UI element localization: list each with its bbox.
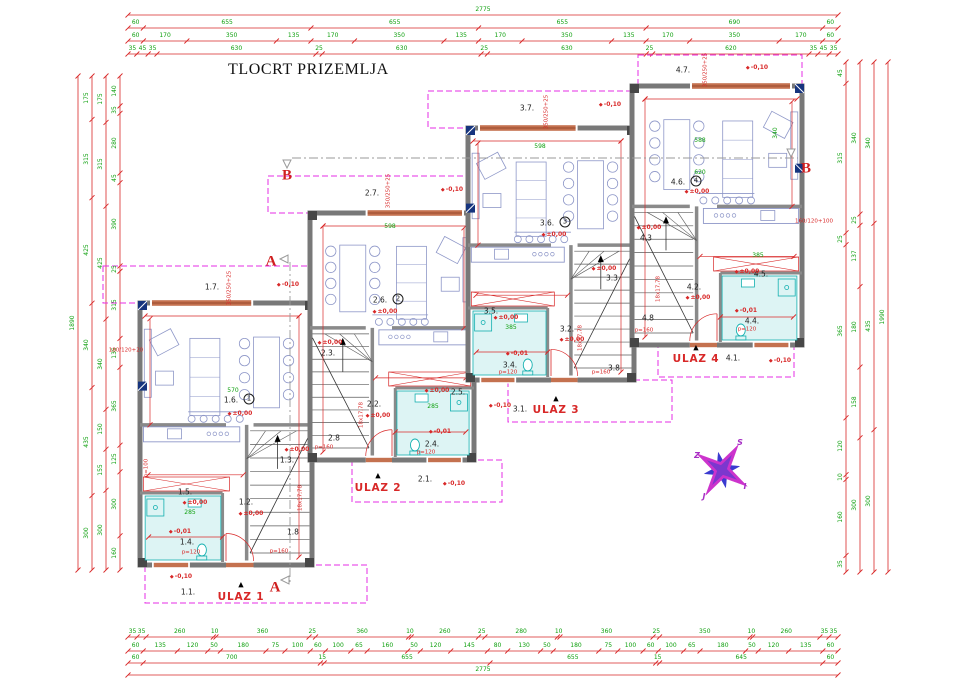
dimension-value: 135 [623,33,634,39]
dimension-value: 180 [237,643,248,649]
level-marker: ±0,00 [318,340,343,346]
room-label: 2.8 [328,434,340,442]
dimension-value: 180 [852,321,858,332]
dimension-value: 1890 [70,315,76,330]
dimension-value: 180 [570,643,581,649]
dimension-value: 620 [725,46,736,52]
dimension-value: 25 [646,46,654,52]
dimension-value: 120 [187,643,198,649]
dimension-value: 60 [132,33,140,39]
entrance-arrow-icon: ▲ [375,473,380,480]
dimension-note: p=160 [592,370,611,376]
room-label: 2.2. [367,400,381,408]
dimension-value: 598 [534,144,545,150]
dimension-value: 25 [838,235,844,243]
dimension-value: 350 [561,33,572,39]
dimension-value: 10 [748,629,756,635]
dimension-value: 285 [184,510,195,516]
dimension-value: 425 [98,257,104,268]
dimension-value: 120 [430,643,441,649]
dimension-value: 35 [112,106,118,114]
dimension-value: 175 [84,92,90,103]
room-label: 3.6. [540,219,554,227]
compass-letter: J [703,493,706,501]
dimension-value: 120 [768,643,779,649]
room-label: 3.3 [606,274,618,282]
dimension-value: 300 [84,527,90,538]
dimension-value: 285 [427,404,438,410]
dimension-value: 570 [227,388,238,394]
level-marker: ±0,00 [637,225,662,231]
level-marker: -0,10 [441,187,463,193]
dimension-value: 25 [308,629,316,635]
dimension-value: 655 [557,20,568,26]
dimension-value: 45 [820,46,828,52]
dimension-value: 655 [567,655,578,661]
dimension-value: 60 [827,655,835,661]
dimension-value: 120 [838,441,844,452]
room-label: 3.2. [560,325,574,333]
dimension-value: 35 [838,560,844,568]
compass-letter: S [737,439,743,447]
dimension-value: 100 [292,643,303,649]
dimension-note: p=100 [144,459,150,478]
level-marker: ±0,00 [560,337,585,343]
plan-labels-layer: 2775606556556556906060170350135170350135… [0,0,960,680]
room-label: 4.7. [676,66,690,74]
dimension-value: 300 [98,524,104,535]
dimension-value: 150 [98,424,104,435]
dimension-value: 360 [257,629,268,635]
room-label: 2.1. [418,475,432,483]
dimension-value: 10 [406,629,414,635]
room-label: 2.3. [321,349,335,357]
room-label: 1.8 [287,528,299,536]
level-marker: -0,01 [735,308,757,314]
dimension-value: 315 [84,153,90,164]
dimension-value: 100 [625,643,636,649]
level-marker: ±0,00 [366,413,391,419]
dimension-value: 315 [112,299,118,310]
level-marker: ±0,00 [285,447,310,453]
dimension-value: 655 [389,20,400,26]
room-label: 4.4. [745,317,759,325]
room-label: 1.3. [280,456,294,464]
dimension-value: 620 [694,170,705,176]
entrance-arrow-icon: ▲ [693,345,698,352]
dimension-value: 25 [478,629,486,635]
level-marker: ±0,00 [425,388,450,394]
room-label: 2.5. [451,388,465,396]
room-label: 3.4. [503,361,517,369]
dimension-value: 425 [84,245,90,256]
dimension-value: 645 [735,655,746,661]
dimension-value: 60 [826,33,834,39]
dimension-note: p=120 [499,370,518,376]
room-number-badge: 2 [393,294,404,305]
room-label: 4.3 [640,234,652,242]
room-label: 3.7. [520,104,534,112]
dimension-value: 340 [866,137,872,148]
dimension-note: p=120 [417,450,436,456]
level-marker: ±0,00 [686,295,711,301]
room-label: 1.6. [224,396,238,404]
room-label: 1.7. [205,283,219,291]
dimension-value: 170 [795,33,806,39]
dimension-value: 390 [112,219,118,230]
room-label: 3.8 [608,364,620,372]
level-marker: -0,01 [429,429,451,435]
dimension-note: 350/250+25 [703,53,709,87]
room-label: 2.7. [365,189,379,197]
section-marker: A [266,255,277,270]
dimension-value: 360 [601,629,612,635]
dimension-note: 350/250+25 [386,174,392,208]
level-marker: ±0,00 [228,411,253,417]
dimension-value: 135 [155,643,166,649]
dimension-value: 260 [781,629,792,635]
dimension-note: p=120 [738,327,757,333]
level-marker: ±0,00 [735,269,760,275]
dimension-value: 25 [112,265,118,273]
dimension-value: 50 [210,643,218,649]
level-marker: ±0,00 [239,511,264,517]
dimension-value: 10 [838,473,844,481]
level-marker: ±0,00 [373,309,398,315]
dimension-note: p=160 [315,445,334,451]
dimension-value: 630 [561,46,572,52]
dimension-value: 125 [112,453,118,464]
level-marker: -0,10 [769,358,791,364]
dimension-value: 135 [800,643,811,649]
page-title: TLOCRT PRIZEMLJA [228,61,389,79]
room-label: 4.6. [671,178,685,186]
dimension-note: 18x17,78 [359,402,365,428]
compass-letter: Z [694,452,700,460]
dimension-value: 50 [543,643,551,649]
dimension-value: 170 [662,33,673,39]
room-label: 1.5. [178,488,192,496]
dimension-note: 160/120+100 [795,219,833,225]
dimension-value: 145 [463,643,474,649]
dimension-value: 65 [688,643,696,649]
dimension-value: 45 [112,174,118,182]
dimension-value: 350 [393,33,404,39]
dimension-value: 655 [401,655,412,661]
dimension-value: 385 [505,325,516,331]
dimension-value: 75 [604,643,612,649]
dimension-value: 170 [495,33,506,39]
dimension-value: 60 [314,643,322,649]
dimension-value: 630 [231,46,242,52]
level-marker: -0,10 [489,403,511,409]
dimension-value: 35 [830,46,838,52]
dimension-value: 365 [838,325,844,336]
room-label: 2.4. [425,440,439,448]
dimension-value: 135 [112,347,118,358]
dimension-value: 315 [98,159,104,170]
dimension-value: 180 [717,643,728,649]
room-label: 4.1. [726,354,740,362]
dimension-value: 340 [852,132,858,143]
dimension-value: 60 [132,655,140,661]
dimension-note: p=160 [635,328,654,334]
entrance-label: ULAZ 1 [218,592,265,603]
level-marker: -0,01 [169,529,191,535]
dimension-value: 100 [665,643,676,649]
dimension-note: 18x17,78 [578,325,584,351]
section-marker: B [801,162,811,177]
dimension-value: 75 [272,643,280,649]
dimension-value: 365 [112,400,118,411]
dimension-value: 350 [729,33,740,39]
dimension-value: 300 [852,499,858,510]
dimension-value: 25 [315,46,323,52]
dimension-value: 435 [866,321,872,332]
dimension-value: 80 [494,643,502,649]
room-number-badge: 3 [560,217,571,228]
dimension-value: 160 [112,547,118,558]
dimension-value: 280 [515,629,526,635]
dimension-note: 350/250+25 [544,95,550,129]
dimension-value: 350 [699,629,710,635]
level-marker: -0,10 [746,65,768,71]
dimension-value: 25 [852,216,858,224]
dimension-value: 260 [174,629,185,635]
entrance-arrow-icon: ▲ [553,396,558,403]
dimension-value: 35 [129,46,137,52]
dimension-value: 588 [694,138,705,144]
dimension-note: 180/120+20 [109,348,143,354]
dimension-value: 100 [332,643,343,649]
dimension-value: 60 [826,20,834,26]
dimension-value: 1990 [880,309,886,324]
dimension-value: 50 [748,643,756,649]
room-label: 1.1. [181,588,195,596]
dimension-value: 65 [355,643,363,649]
dimension-value: 60 [827,643,835,649]
dimension-value: 385 [752,253,763,259]
dimension-value: 50 [410,643,418,649]
dimension-value: 340 [84,340,90,351]
dimension-note: 18x17,78 [656,276,662,302]
dimension-value: 158 [852,397,858,408]
dimension-note: 350/250+25 [227,271,233,305]
dimension-value: 598 [384,224,395,230]
section-marker: A [270,581,281,596]
room-label: 1.4. [180,538,194,546]
dimension-value: 15 [318,655,326,661]
room-number-badge: 1 [244,394,255,405]
level-marker: -0,10 [277,282,299,288]
room-number-badge: 4 [691,176,702,187]
dimension-value: 25 [652,629,660,635]
dimension-value: 10 [211,629,219,635]
dimension-value: 160 [382,643,393,649]
dimension-value: 2775 [475,667,490,673]
dimension-value: 35 [149,46,157,52]
room-label: 2.6. [373,296,387,304]
dimension-value: 300 [866,495,872,506]
level-marker: -0,10 [170,574,192,580]
dimension-note: 18x17,78 [298,485,304,511]
dimension-value: 630 [396,46,407,52]
dimension-value: 60 [132,20,140,26]
dimension-value: 35 [810,46,818,52]
level-marker: ±0,00 [592,266,617,272]
level-marker: ±0,00 [494,315,519,321]
dimension-value: 340 [773,127,779,138]
entrance-arrow-icon: ▲ [238,582,243,589]
dimension-value: 260 [439,629,450,635]
dimension-value: 700 [226,655,237,661]
dimension-value: 35 [138,629,146,635]
dimension-value: 300 [112,498,118,509]
dimension-value: 135 [456,33,467,39]
room-label: 3.5. [484,307,498,315]
dimension-value: 45 [838,69,844,77]
dimension-value: 170 [327,33,338,39]
room-label: 4.5. [754,270,768,278]
dimension-value: 690 [729,20,740,26]
compass-letter: I [744,483,747,491]
dimension-value: 2775 [475,7,490,13]
section-marker: B [282,169,292,184]
dimension-note: p=160 [270,549,289,555]
dimension-note: p=120 [182,550,201,556]
room-label: 1.2. [239,498,253,506]
dimension-value: 130 [518,643,529,649]
dimension-value: 280 [112,137,118,148]
dimension-value: 170 [159,33,170,39]
dimension-value: 60 [132,643,140,649]
level-marker: -0,01 [506,351,528,357]
dimension-value: 15 [654,655,662,661]
level-marker: ±0,00 [685,189,710,195]
dimension-value: 435 [84,436,90,447]
level-marker: -0,10 [599,102,621,108]
room-label: 4.8 [642,314,654,322]
entrance-label: ULAZ 3 [533,405,580,416]
dimension-value: 175 [98,94,104,105]
room-label: 3.1. [513,405,527,413]
dimension-value: 315 [838,152,844,163]
dimension-value: 350 [226,33,237,39]
dimension-value: 655 [221,20,232,26]
dimension-value: 45 [139,46,147,52]
dimension-value: 60 [647,643,655,649]
dimension-value: 340 [98,358,104,369]
dimension-value: 135 [288,33,299,39]
dimension-value: 140 [112,85,118,96]
level-marker: -0,10 [443,481,465,487]
dimension-value: 160 [838,512,844,523]
room-label: 4.2. [687,283,701,291]
dimension-value: 35 [821,629,829,635]
entrance-label: ULAZ 2 [355,483,402,494]
dimension-value: 35 [830,629,838,635]
dimension-value: 137 [852,250,858,261]
dimension-value: 360 [356,629,367,635]
level-marker: ±0,00 [183,500,208,506]
dimension-value: 10 [555,629,563,635]
dimension-value: 35 [129,629,137,635]
dimension-value: 155 [98,464,104,475]
floor-plan-canvas: 2775606556556556906060170350135170350135… [0,0,960,680]
dimension-value: 25 [480,46,488,52]
level-marker: ±0,00 [542,232,567,238]
entrance-label: ULAZ 4 [673,354,720,365]
